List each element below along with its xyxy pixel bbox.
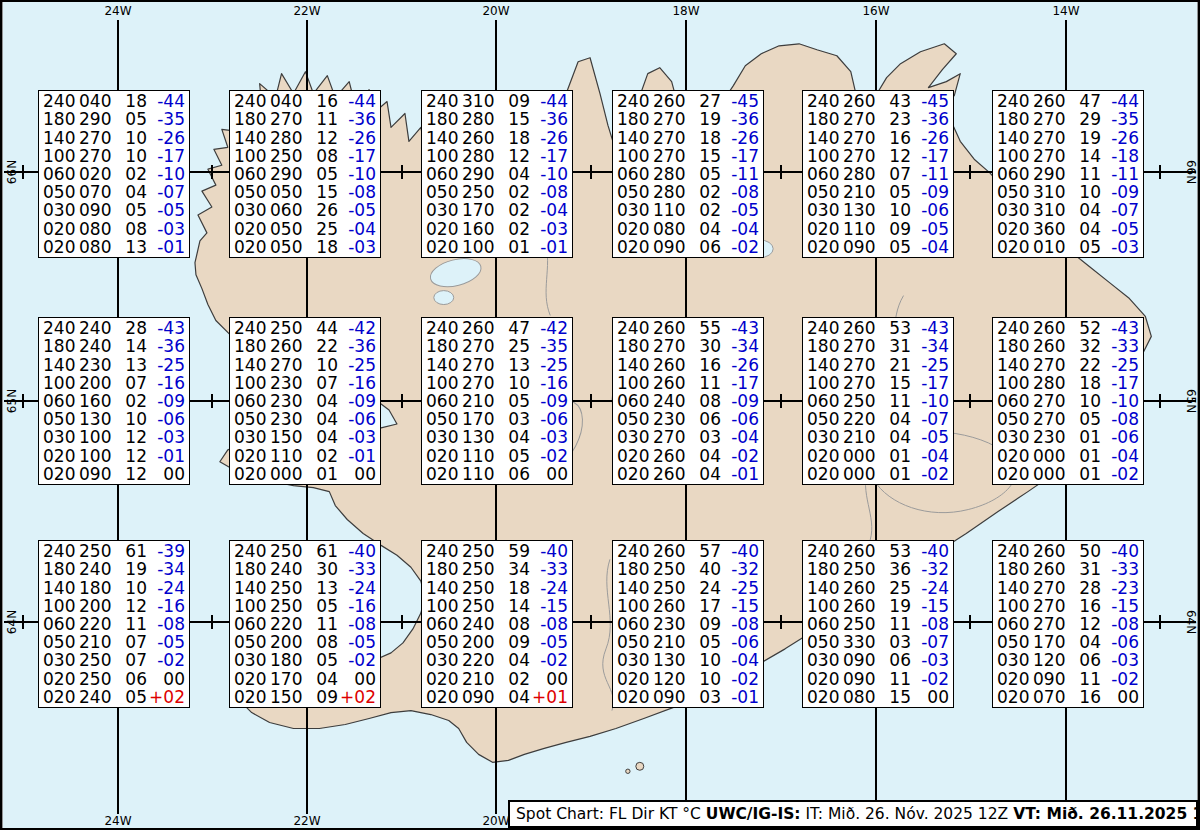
wind-direction-value: 110 xyxy=(270,447,312,465)
temperature-value: -02 xyxy=(530,447,568,465)
wind-direction-value: 250 xyxy=(462,560,504,578)
spot-data-line: 03006026-05 xyxy=(234,201,376,219)
wind-speed-value: 22 xyxy=(1075,356,1101,374)
wind-speed-value: 04 xyxy=(695,220,721,238)
temperature-value: 00 xyxy=(338,465,376,483)
wind-speed-value: 04 xyxy=(1075,201,1101,219)
spot-data-line: 0200701600 xyxy=(997,688,1139,706)
wind-speed-value: 26 xyxy=(312,201,338,219)
temperature-value: -03 xyxy=(530,428,568,446)
flight-level-value: 020 xyxy=(617,220,653,238)
wind-speed-value: 04 xyxy=(1075,220,1101,238)
wind-speed-value: 04 xyxy=(312,392,338,410)
wind-direction-value: 210 xyxy=(653,633,695,651)
flight-level-value: 060 xyxy=(426,615,462,633)
flight-level-value: 240 xyxy=(617,319,653,337)
temperature-value: -05 xyxy=(721,201,759,219)
temperature-value: -01 xyxy=(338,447,376,465)
flight-level-value: 060 xyxy=(426,392,462,410)
wind-direction-value: 250 xyxy=(79,651,121,669)
temperature-value: -11 xyxy=(1101,165,1139,183)
spot-data-line: 0200000100 xyxy=(234,465,376,483)
spot-data-line: 02009004+01 xyxy=(426,688,568,706)
wind-direction-value: 330 xyxy=(843,633,885,651)
temperature-value: -44 xyxy=(147,92,185,110)
flight-level-value: 180 xyxy=(997,337,1033,355)
wind-direction-value: 260 xyxy=(462,129,504,147)
flight-level-value: 030 xyxy=(43,651,79,669)
flight-level-value: 050 xyxy=(807,633,843,651)
flight-level-value: 060 xyxy=(617,615,653,633)
flight-level-value: 020 xyxy=(807,238,843,256)
spot-box: 24026053-4018025036-3214026025-241002601… xyxy=(802,540,954,708)
wind-direction-value: 310 xyxy=(1033,201,1075,219)
temperature-value: -25 xyxy=(1101,356,1139,374)
temperature-value: -15 xyxy=(721,597,759,615)
spot-data-line: 18025034-33 xyxy=(426,560,568,578)
spot-data-line: 0202500600 xyxy=(43,670,185,688)
flight-level-value: 240 xyxy=(426,92,462,110)
wind-speed-value: 05 xyxy=(504,447,530,465)
spot-data-line: 14027022-25 xyxy=(997,356,1139,374)
wind-speed-value: 28 xyxy=(121,319,147,337)
flight-level-value: 030 xyxy=(234,201,270,219)
temperature-value: -04 xyxy=(911,447,949,465)
wind-speed-value: 25 xyxy=(504,337,530,355)
spot-data-line: 14018010-24 xyxy=(43,579,185,597)
spot-data-line: 03013010-06 xyxy=(807,201,949,219)
temperature-value: -10 xyxy=(338,165,376,183)
wind-direction-value: 080 xyxy=(653,220,695,238)
wind-speed-value: 04 xyxy=(885,410,911,428)
wind-speed-value: 10 xyxy=(312,356,338,374)
wind-speed-value: 44 xyxy=(312,319,338,337)
wind-direction-value: 270 xyxy=(1033,147,1075,165)
wind-speed-value: 01 xyxy=(1075,428,1101,446)
spot-data-line: 02011005-02 xyxy=(426,447,568,465)
temperature-value: -10 xyxy=(147,165,185,183)
spot-box: 24004018-4418029005-3514027010-261002701… xyxy=(38,90,190,258)
spot-data-line: 18027023-36 xyxy=(807,110,949,128)
wind-direction-value: 240 xyxy=(79,337,121,355)
flight-level-value: 050 xyxy=(617,183,653,201)
wind-direction-value: 280 xyxy=(462,147,504,165)
wind-speed-value: 08 xyxy=(121,220,147,238)
wind-direction-value: 020 xyxy=(79,165,121,183)
temperature-value: -43 xyxy=(911,319,949,337)
wind-speed-value: 18 xyxy=(504,579,530,597)
spot-data-line: 10023007-16 xyxy=(234,374,376,392)
flight-level-value: 100 xyxy=(426,147,462,165)
flight-level-value: 050 xyxy=(234,410,270,428)
spot-data-line: 03010012-03 xyxy=(43,428,185,446)
spot-data-line: 18026031-33 xyxy=(997,560,1139,578)
temperature-value: -10 xyxy=(1101,392,1139,410)
flight-level-value: 020 xyxy=(997,465,1033,483)
temperature-value: -35 xyxy=(147,110,185,128)
temperature-value: -09 xyxy=(147,392,185,410)
spot-data-line: 02008008-03 xyxy=(43,220,185,238)
spot-data-line: 05017004-06 xyxy=(997,633,1139,651)
wind-direction-value: 100 xyxy=(79,447,121,465)
flight-level-value: 140 xyxy=(426,356,462,374)
temperature-value: -26 xyxy=(911,129,949,147)
wind-direction-value: 290 xyxy=(79,110,121,128)
flight-level-value: 140 xyxy=(234,579,270,597)
wind-speed-value: 16 xyxy=(1075,597,1101,615)
meridian-label-bottom: 24W xyxy=(104,814,131,828)
wind-direction-value: 290 xyxy=(462,165,504,183)
wind-speed-value: 47 xyxy=(1075,92,1101,110)
spot-box: 24026043-4518027023-3614027016-261002701… xyxy=(802,90,954,258)
spot-data-line: 18027031-34 xyxy=(807,337,949,355)
spot-data-line: 05013010-06 xyxy=(43,410,185,428)
flight-level-value: 050 xyxy=(43,633,79,651)
parallel-label-left: 66N xyxy=(5,160,19,184)
wind-speed-value: 59 xyxy=(504,542,530,560)
spot-data-line: 06022011-08 xyxy=(43,615,185,633)
temperature-value: 00 xyxy=(1101,688,1139,706)
spot-data-line: 03022004-02 xyxy=(426,651,568,669)
spot-data-line: 05023006-06 xyxy=(617,410,759,428)
wind-speed-value: 12 xyxy=(121,465,147,483)
spot-data-line: 05033003-07 xyxy=(807,633,949,651)
temperature-value: -04 xyxy=(911,238,949,256)
wind-speed-value: 09 xyxy=(504,92,530,110)
wind-speed-value: 02 xyxy=(504,183,530,201)
wind-direction-value: 280 xyxy=(1033,374,1075,392)
wind-speed-value: 12 xyxy=(121,428,147,446)
spot-data-line: 24026055-43 xyxy=(617,319,759,337)
flight-level-value: 180 xyxy=(807,110,843,128)
flight-level-value: 060 xyxy=(426,165,462,183)
wind-direction-value: 270 xyxy=(843,337,885,355)
temperature-value: -02 xyxy=(530,651,568,669)
wind-speed-value: 19 xyxy=(1075,129,1101,147)
temperature-value: -02 xyxy=(911,670,949,688)
wind-speed-value: 05 xyxy=(885,238,911,256)
parallel-label-left: 64N xyxy=(5,610,19,634)
temperature-value: -33 xyxy=(530,560,568,578)
wind-speed-value: 27 xyxy=(695,92,721,110)
spot-data-line: 03009005-05 xyxy=(43,201,185,219)
temperature-value: -33 xyxy=(338,560,376,578)
spot-data-line: 14026025-24 xyxy=(807,579,949,597)
flight-level-value: 030 xyxy=(43,201,79,219)
wind-speed-value: 08 xyxy=(504,615,530,633)
temperature-value: -05 xyxy=(911,220,949,238)
wind-speed-value: 12 xyxy=(885,147,911,165)
wind-speed-value: 05 xyxy=(121,201,147,219)
flight-level-value: 180 xyxy=(234,110,270,128)
temperature-value: -01 xyxy=(721,688,759,706)
spot-data-line: 02009011-02 xyxy=(807,670,949,688)
wind-direction-value: 050 xyxy=(270,220,312,238)
wind-direction-value: 290 xyxy=(270,165,312,183)
wind-direction-value: 270 xyxy=(843,147,885,165)
spot-box: 24026047-4418027029-3514027019-261002701… xyxy=(992,90,1144,258)
wind-direction-value: 260 xyxy=(653,356,695,374)
temperature-value: -09 xyxy=(530,392,568,410)
graticule-tick xyxy=(1159,165,1161,179)
flight-level-value: 240 xyxy=(43,319,79,337)
wind-direction-value: 250 xyxy=(462,542,504,560)
temperature-value: -07 xyxy=(911,410,949,428)
spot-data-line: 10027014-18 xyxy=(997,147,1139,165)
wind-direction-value: 090 xyxy=(843,670,885,688)
spot-data-line: 06022011-08 xyxy=(234,615,376,633)
temperature-value: -25 xyxy=(530,356,568,374)
wind-speed-value: 02 xyxy=(121,392,147,410)
temperature-value: -17 xyxy=(911,374,949,392)
wind-speed-value: 40 xyxy=(695,560,721,578)
spot-data-line: 10025014-15 xyxy=(426,597,568,615)
spot-data-line: 05007004-07 xyxy=(43,183,185,201)
wind-speed-value: 10 xyxy=(1075,392,1101,410)
wind-speed-value: 05 xyxy=(504,392,530,410)
spot-data-line: 18027019-36 xyxy=(617,110,759,128)
flight-level-value: 100 xyxy=(997,374,1033,392)
wind-direction-value: 280 xyxy=(843,165,885,183)
wind-speed-value: 19 xyxy=(695,110,721,128)
temperature-value: -43 xyxy=(721,319,759,337)
spot-data-line: 14028012-26 xyxy=(234,129,376,147)
wind-speed-value: 07 xyxy=(121,633,147,651)
wind-direction-value: 230 xyxy=(653,615,695,633)
temperature-value: -07 xyxy=(1101,201,1139,219)
temperature-value: -05 xyxy=(338,633,376,651)
graticule-tick xyxy=(969,615,971,629)
wind-speed-value: 08 xyxy=(695,392,721,410)
meridian-label-bottom: 20W xyxy=(482,814,509,828)
flight-level-value: 180 xyxy=(997,110,1033,128)
spot-data-line: 06025011-08 xyxy=(807,615,949,633)
temperature-value: -15 xyxy=(911,597,949,615)
flight-level-value: 060 xyxy=(617,392,653,410)
temperature-value: -17 xyxy=(147,147,185,165)
temperature-value: -44 xyxy=(338,92,376,110)
flight-level-value: 100 xyxy=(807,147,843,165)
spot-data-line: 03017002-04 xyxy=(426,201,568,219)
flight-level-value: 020 xyxy=(43,670,79,688)
flight-level-value: 180 xyxy=(43,560,79,578)
wind-speed-value: 53 xyxy=(885,542,911,560)
temperature-value: -08 xyxy=(530,615,568,633)
temperature-value: -05 xyxy=(147,201,185,219)
flight-level-value: 020 xyxy=(617,238,653,256)
spot-data-line: 18025036-32 xyxy=(807,560,949,578)
wind-direction-value: 270 xyxy=(270,110,312,128)
graticule-tick xyxy=(22,394,24,408)
flight-level-value: 020 xyxy=(426,238,462,256)
wind-direction-value: 000 xyxy=(1033,465,1075,483)
wind-speed-value: 22 xyxy=(312,337,338,355)
flight-level-value: 060 xyxy=(234,165,270,183)
wind-direction-value: 250 xyxy=(843,392,885,410)
graticule-tick xyxy=(211,615,213,629)
temperature-value: -36 xyxy=(721,110,759,128)
wind-speed-value: 12 xyxy=(121,447,147,465)
wind-speed-value: 02 xyxy=(312,447,338,465)
flight-level-value: 180 xyxy=(807,560,843,578)
wind-speed-value: 03 xyxy=(695,428,721,446)
spot-data-line: 06027012-08 xyxy=(997,615,1139,633)
spot-data-line: 06024008-08 xyxy=(426,615,568,633)
wind-speed-value: 18 xyxy=(1075,374,1101,392)
spot-data-line: 14026016-26 xyxy=(617,356,759,374)
wind-speed-value: 15 xyxy=(504,110,530,128)
graticule-tick xyxy=(780,615,782,629)
flight-level-value: 240 xyxy=(617,542,653,560)
meridian-label-bottom: 22W xyxy=(293,814,320,828)
wind-speed-value: 04 xyxy=(504,165,530,183)
flight-level-value: 060 xyxy=(43,165,79,183)
wind-direction-value: 270 xyxy=(1033,597,1075,615)
flight-level-value: 020 xyxy=(997,220,1033,238)
wind-direction-value: 270 xyxy=(1033,356,1075,374)
wind-direction-value: 210 xyxy=(843,428,885,446)
temperature-value: -02 xyxy=(911,465,949,483)
temperature-value: -26 xyxy=(530,129,568,147)
wind-speed-value: 02 xyxy=(504,670,530,688)
wind-direction-value: 000 xyxy=(843,447,885,465)
flight-level-value: 050 xyxy=(43,410,79,428)
wind-speed-value: 31 xyxy=(885,337,911,355)
graticule-tick xyxy=(211,394,213,408)
temperature-value: -06 xyxy=(721,410,759,428)
flight-level-value: 240 xyxy=(807,92,843,110)
wind-speed-value: 09 xyxy=(312,688,338,706)
wind-direction-value: 260 xyxy=(843,92,885,110)
temperature-value: -08 xyxy=(1101,410,1139,428)
wind-direction-value: 260 xyxy=(653,597,695,615)
temperature-value: -43 xyxy=(147,319,185,337)
wind-direction-value: 270 xyxy=(1033,110,1075,128)
flight-level-value: 060 xyxy=(234,615,270,633)
spot-data-line: 14027019-26 xyxy=(997,129,1139,147)
spot-data-line: 02011009-05 xyxy=(807,220,949,238)
wind-direction-value: 040 xyxy=(79,92,121,110)
temperature-value: -04 xyxy=(530,201,568,219)
wind-direction-value: 360 xyxy=(1033,220,1075,238)
spot-data-line: 10027015-17 xyxy=(617,147,759,165)
wind-speed-value: 10 xyxy=(695,651,721,669)
flight-level-value: 140 xyxy=(43,356,79,374)
spot-data-line: 05021005-09 xyxy=(807,183,949,201)
spot-data-line: 06023009-08 xyxy=(617,615,759,633)
wind-direction-value: 050 xyxy=(270,183,312,201)
spot-data-line: 05022004-07 xyxy=(807,410,949,428)
temperature-value: -06 xyxy=(530,410,568,428)
wind-direction-value: 260 xyxy=(653,542,695,560)
temperature-value: -15 xyxy=(530,597,568,615)
flight-level-value: 020 xyxy=(807,688,843,706)
flight-level-value: 030 xyxy=(43,428,79,446)
spot-data-line: 05021007-05 xyxy=(43,633,185,651)
flight-level-value: 030 xyxy=(234,651,270,669)
wind-speed-value: 16 xyxy=(885,129,911,147)
flight-level-value: 100 xyxy=(997,147,1033,165)
wind-direction-value: 260 xyxy=(843,319,885,337)
wind-speed-value: 05 xyxy=(695,633,721,651)
wind-speed-value: 04 xyxy=(1075,633,1101,651)
spot-data-line: 02000001-04 xyxy=(807,447,949,465)
temperature-value: -10 xyxy=(530,165,568,183)
wind-direction-value: 160 xyxy=(79,392,121,410)
spot-data-line: 14027018-26 xyxy=(617,129,759,147)
wind-speed-value: 03 xyxy=(885,633,911,651)
flight-level-value: 050 xyxy=(43,183,79,201)
flight-level-value: 240 xyxy=(426,542,462,560)
parallel-label-left: 65N xyxy=(5,389,19,413)
flight-level-value: 100 xyxy=(234,147,270,165)
wind-speed-value: 07 xyxy=(121,374,147,392)
flight-level-value: 050 xyxy=(997,183,1033,201)
parallel-label-right: 66N xyxy=(1184,160,1198,184)
flight-level-value: 100 xyxy=(807,597,843,615)
wind-speed-value: 11 xyxy=(695,374,721,392)
flight-level-value: 020 xyxy=(234,465,270,483)
temperature-value: -43 xyxy=(1101,319,1139,337)
flight-level-value: 060 xyxy=(43,615,79,633)
flight-level-value: 100 xyxy=(234,374,270,392)
wind-speed-value: 47 xyxy=(504,319,530,337)
wind-direction-value: 170 xyxy=(270,670,312,688)
spot-data-line: 02015009+02 xyxy=(234,688,376,706)
spot-chart: 24004018-4418029005-3514027010-261002701… xyxy=(0,0,1200,830)
temperature-value: 00 xyxy=(147,465,185,483)
spot-data-line: 24026047-44 xyxy=(997,92,1139,110)
temperature-value: -16 xyxy=(147,597,185,615)
wind-speed-value: 19 xyxy=(121,560,147,578)
wind-direction-value: 260 xyxy=(843,579,885,597)
wind-direction-value: 230 xyxy=(1033,428,1075,446)
temperature-value: -23 xyxy=(1101,579,1139,597)
wind-direction-value: 260 xyxy=(843,597,885,615)
wind-direction-value: 270 xyxy=(1033,129,1075,147)
wind-direction-value: 220 xyxy=(270,615,312,633)
flight-level-value: 030 xyxy=(997,651,1033,669)
wind-direction-value: 260 xyxy=(1033,542,1075,560)
flight-level-value: 140 xyxy=(43,579,79,597)
wind-direction-value: 240 xyxy=(270,560,312,578)
temperature-value: -01 xyxy=(147,447,185,465)
wind-direction-value: 210 xyxy=(843,183,885,201)
flight-level-value: 020 xyxy=(617,465,653,483)
wind-speed-value: 10 xyxy=(504,374,530,392)
spot-data-line: 06002002-10 xyxy=(43,165,185,183)
flight-level-value: 050 xyxy=(617,633,653,651)
spot-data-line: 24026027-45 xyxy=(617,92,759,110)
temperature-value: -11 xyxy=(721,165,759,183)
wind-speed-value: 04 xyxy=(312,428,338,446)
spot-data-line: 02000001-04 xyxy=(997,447,1139,465)
temperature-value: -25 xyxy=(147,356,185,374)
temperature-value: -03 xyxy=(1101,238,1139,256)
wind-direction-value: 200 xyxy=(79,374,121,392)
spot-data-line: 02010012-01 xyxy=(43,447,185,465)
temperature-value: -07 xyxy=(147,183,185,201)
wind-direction-value: 270 xyxy=(462,374,504,392)
spot-data-line: 03011002-05 xyxy=(617,201,759,219)
spot-box: 24026047-4218027025-3514027013-251002701… xyxy=(421,317,573,485)
wind-speed-value: 15 xyxy=(885,688,911,706)
wind-direction-value: 000 xyxy=(843,465,885,483)
temperature-value: -35 xyxy=(1101,110,1139,128)
wind-direction-value: 120 xyxy=(653,670,695,688)
wind-direction-value: 120 xyxy=(1033,651,1075,669)
spot-data-line: 02001005-03 xyxy=(997,238,1139,256)
